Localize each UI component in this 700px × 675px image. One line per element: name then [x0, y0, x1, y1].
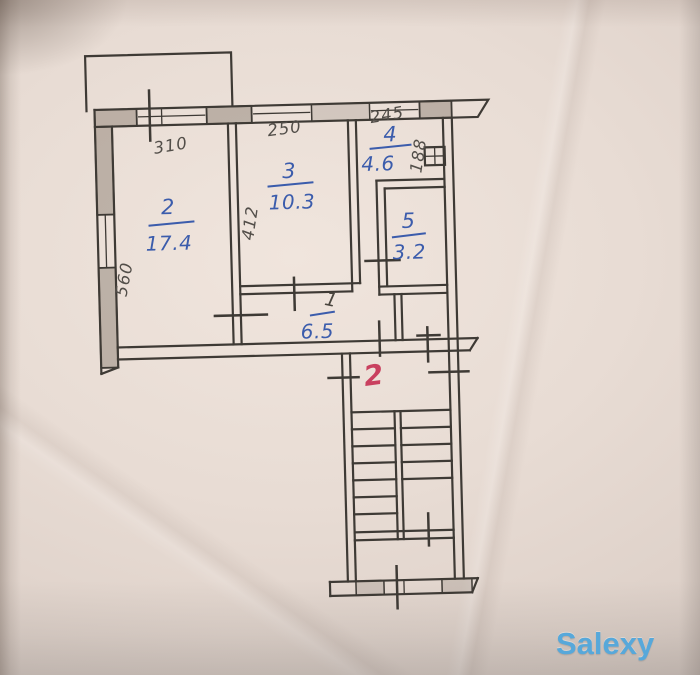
stair-stringer: [394, 411, 397, 539]
wall-pier: [206, 106, 251, 124]
survey-tick: [428, 513, 429, 545]
salexy-watermark: Salexy: [556, 626, 654, 662]
svg-text:6.5: 6.5: [300, 319, 334, 344]
room2-label: 2 17.4: [144, 194, 194, 255]
room4-label: 4 4.6: [360, 122, 411, 176]
svg-text:4.6: 4.6: [361, 151, 395, 176]
porch-segment: [356, 581, 384, 596]
window-glazing: [254, 112, 310, 113]
floor-plan-drawing: 310 250 245 412 560 188 2 17.4 3 10.3 4 …: [0, 0, 700, 675]
room5-label: 5 3.2: [392, 208, 427, 264]
stair-tread: [352, 445, 395, 446]
stair-tread: [354, 513, 397, 514]
survey-tick: [397, 566, 398, 608]
stair-tread: [354, 496, 397, 497]
balcony-outline: [85, 52, 232, 111]
porch-segment: [442, 578, 472, 593]
hallway-label: 1 6.5: [300, 288, 341, 344]
wall-slant-tip: [470, 338, 478, 350]
svg-text:10.3: 10.3: [268, 189, 315, 214]
entrance-porch-wall: [330, 564, 479, 610]
survey-tick: [149, 91, 150, 141]
svg-text:3.2: 3.2: [392, 239, 426, 264]
wall-pier: [94, 109, 136, 127]
survey-tick: [429, 371, 468, 372]
survey-tick: [329, 377, 359, 378]
wall-pier: [95, 127, 114, 215]
stair-tread: [401, 427, 451, 428]
wall-stub: [394, 294, 402, 340]
stair-tread: [352, 428, 395, 429]
dim-room3-width: 250: [266, 117, 303, 140]
left-wall: [94, 110, 118, 374]
bottom-wall: [118, 338, 478, 359]
dim-room4-depth: 188: [406, 137, 430, 174]
svg-text:3: 3: [282, 159, 296, 183]
stair-stringer: [400, 411, 403, 539]
wall-pier: [419, 101, 451, 119]
door-tick: [215, 315, 267, 316]
wall-room3-bottom: [240, 276, 361, 311]
stair-tread: [402, 478, 452, 479]
door-tick: [417, 335, 439, 336]
stair-tread: [353, 479, 396, 480]
room5-walls: [363, 179, 447, 295]
top-wall-extension: [451, 100, 488, 118]
stairwell-left-wall: [342, 354, 348, 582]
wall-pier: [311, 103, 369, 122]
svg-text:17.4: 17.4: [145, 230, 192, 255]
dim-room3-depth: 412: [238, 205, 262, 242]
door-tick: [294, 278, 295, 310]
window-glazing: [105, 215, 106, 268]
door-tick: [379, 322, 380, 356]
landing-edge: [355, 530, 454, 533]
svg-text:5: 5: [401, 209, 415, 233]
landing-edge: [355, 538, 454, 541]
door-tick: [427, 327, 428, 361]
entrance-number-red: 2: [362, 358, 386, 393]
stair-tread: [353, 462, 396, 463]
right-wall: [443, 118, 464, 579]
dim-room2-width: 310: [152, 133, 189, 157]
stair-tread: [402, 461, 452, 462]
stairwell-left-wall: [350, 353, 356, 581]
wall-room3-room4: [348, 120, 360, 291]
stair-tread: [401, 444, 451, 445]
scanned-floor-plan-photo: 310 250 245 412 560 188 2 17.4 3 10.3 4 …: [0, 0, 700, 675]
svg-text:4: 4: [383, 122, 397, 146]
room3-label: 3 10.3: [268, 158, 316, 214]
svg-text:2: 2: [161, 195, 175, 219]
